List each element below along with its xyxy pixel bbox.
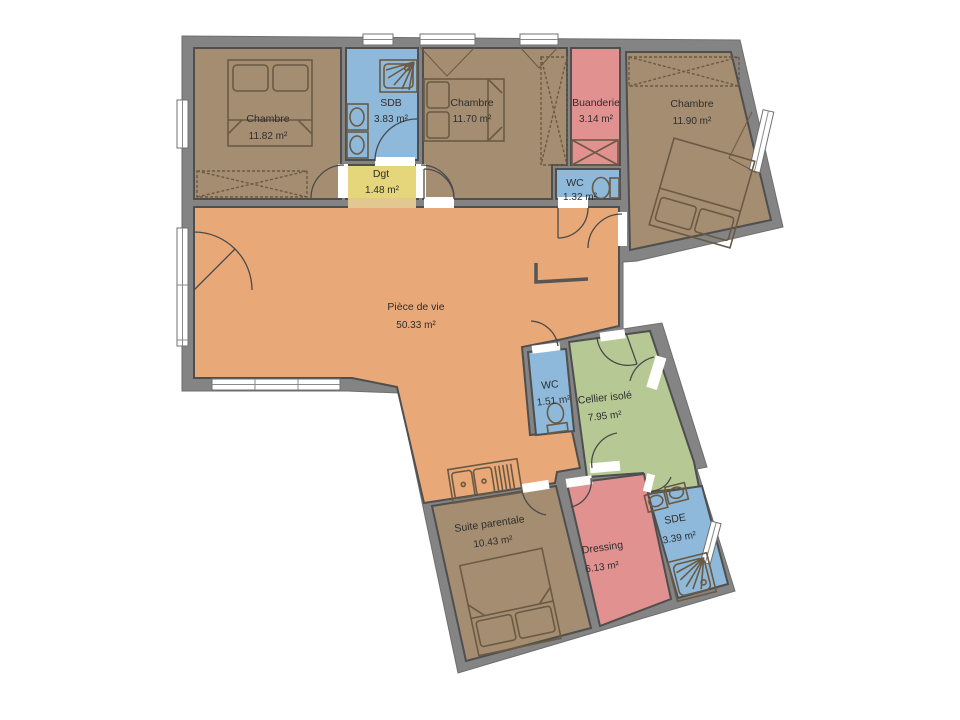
room-area-label: 50.33 m² [396,320,436,331]
room-area-label: 1.32 m² [563,192,598,203]
opening-living-to-dgt [348,198,416,208]
window-sdb-top [363,34,393,45]
room-name-label: WC [566,177,584,189]
window-chambre-1-left [177,100,188,148]
room-area-label: 1.48 m² [365,185,400,196]
window-living-bottom [212,379,340,390]
room-name-label: Chambre [450,97,493,109]
floor-plan-page: Chambre 11.82 m² SDB 3.83 m² Dgt 1.48 m²… [0,0,960,720]
room-name-label: SDB [380,97,402,109]
room-area-label: 3.83 m² [374,114,409,125]
floor-plan-drawing: Chambre 11.82 m² SDB 3.83 m² Dgt 1.48 m²… [0,0,960,720]
room-name-label: Chambre [670,98,713,110]
room-name-label: Buanderie [572,97,620,109]
room-area-label: 11.70 m² [453,114,492,125]
room-area-label: 11.90 m² [673,116,712,127]
room-name-label: Chambre [246,113,289,125]
room-name-label: Dgt [373,168,389,180]
room-area-label: 11.82 m² [249,131,288,142]
room-name-label: WC [541,378,560,392]
shower-icon-sde [668,553,716,601]
room-name-label: Pièce de vie [387,301,444,313]
room-area-label: 3.14 m² [579,114,614,125]
